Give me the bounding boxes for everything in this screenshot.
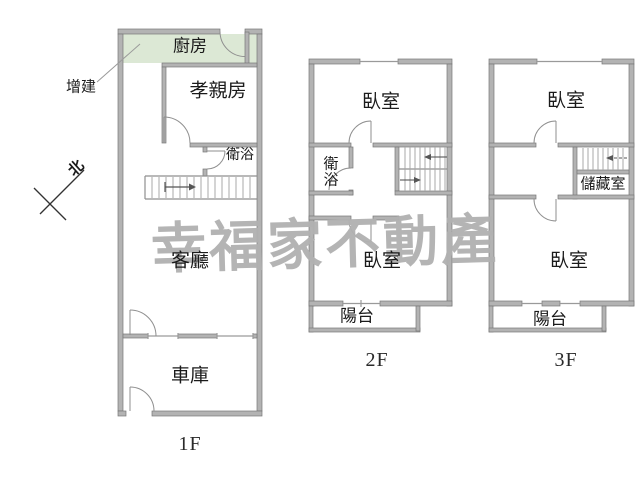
room-label-bedroom-top-3f: 臥室: [547, 92, 585, 111]
room-label-garage: 車庫: [171, 367, 209, 386]
room-label-bedroom-bottom-3f: 臥室: [550, 252, 588, 271]
floor-3f-doors: [534, 121, 556, 221]
room-label-kitchen: 廚房: [173, 38, 207, 55]
room-label-bedroom-bottom-2f: 臥室: [363, 252, 401, 271]
room-label-balcony-2f: 陽台: [340, 308, 374, 325]
annotation-addition: 增建: [66, 81, 96, 96]
room-label-parents-room: 孝親房: [189, 82, 246, 101]
room-label-balcony-3f: 陽台: [533, 311, 567, 328]
floor-2f-stairs: [399, 147, 447, 191]
floor-3f-stairs: [583, 148, 627, 170]
room-label-living-room: 客廳: [171, 252, 209, 271]
room-label-storage: 儲藏室: [580, 178, 625, 193]
floor-1f-stairs: [145, 176, 257, 199]
room-label-bedroom-top-2f: 臥室: [362, 93, 400, 112]
floor-label-3f: 3F: [554, 350, 577, 370]
floor-label-2f: 2F: [365, 350, 388, 370]
stairs-direction-arrow: [165, 182, 189, 192]
room-label-bathroom-1f: 衛浴: [226, 149, 254, 163]
room-label-bathroom-2f: 衛浴: [323, 157, 339, 189]
floor-label-1f: 1F: [178, 434, 201, 454]
floorplan-canvas: 幸福家不動產 廚房 增建 孝親房 衛浴 客廳 車庫 1F 北 臥室 衛浴 臥室 …: [0, 0, 640, 480]
